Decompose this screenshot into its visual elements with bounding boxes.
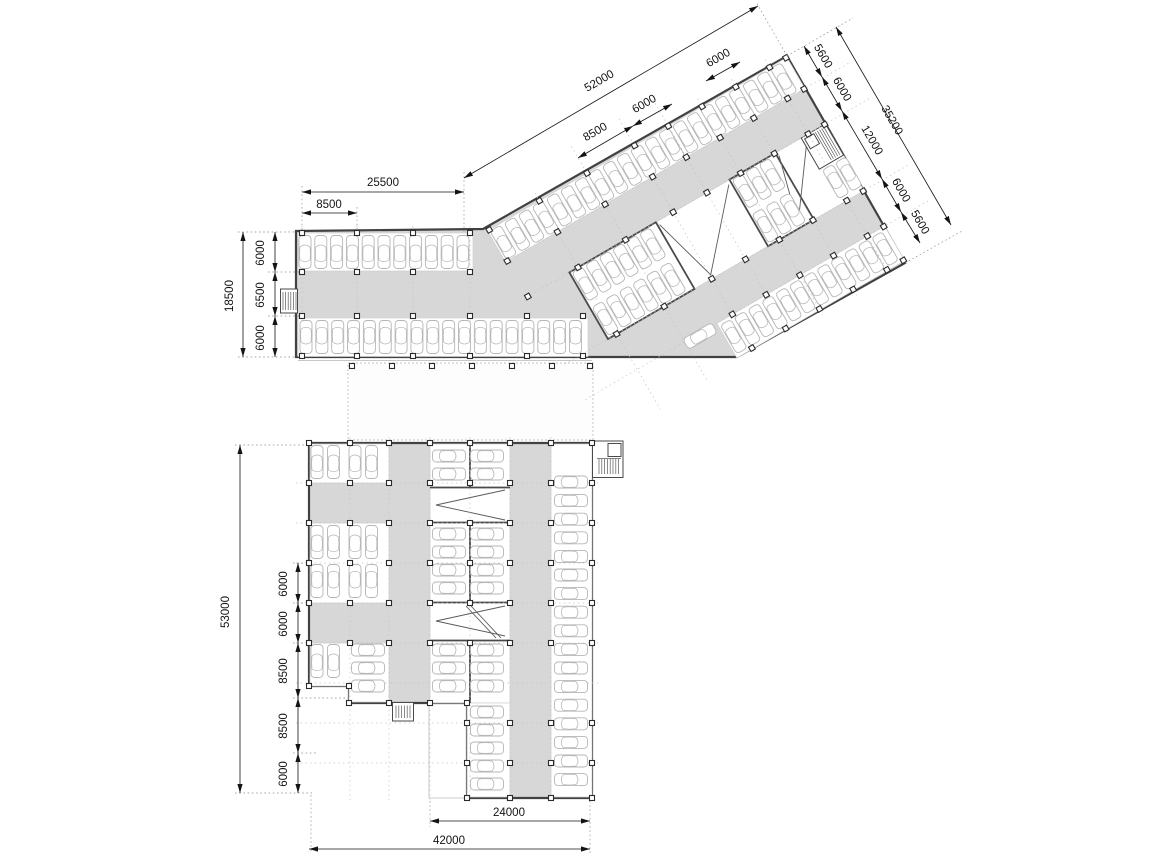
car-icon: [555, 625, 588, 637]
car-icon: [471, 468, 504, 480]
column-marker: [508, 721, 513, 726]
column-marker: [300, 231, 305, 236]
column-marker: [348, 601, 353, 606]
column-marker: [390, 364, 395, 369]
column-marker: [508, 521, 513, 526]
car-icon: [555, 550, 588, 562]
car-icon: [555, 606, 588, 618]
stair-south: [393, 703, 414, 722]
dim-label-bar-chain-2: 6000: [255, 325, 267, 351]
car-icon: [433, 528, 466, 540]
car-icon: [555, 774, 588, 786]
column-marker: [468, 521, 473, 526]
column-marker: [468, 641, 473, 646]
car-icon: [366, 446, 378, 479]
column-marker: [525, 354, 530, 359]
car-icon: [316, 321, 328, 354]
column-marker: [468, 231, 473, 236]
column-marker: [430, 364, 435, 369]
open-yard-outline: [429, 703, 467, 798]
floorplan-sheet: 52000 8500 6000 6000 25500 8500 5600 600…: [0, 0, 1156, 865]
car-icon: [506, 321, 518, 354]
car-icon: [410, 236, 422, 269]
dim-label-bar-chain-1: 6500: [255, 282, 267, 308]
car-icon: [554, 321, 566, 354]
column-marker: [465, 796, 470, 801]
witness-line: [905, 231, 962, 263]
dim-label-bar-chain-0: 6000: [255, 240, 267, 266]
column-marker: [581, 354, 586, 359]
column-marker: [590, 521, 595, 526]
connecting-deck: [298, 361, 593, 441]
car-icon: [441, 236, 453, 269]
column-marker: [465, 701, 470, 706]
column-marker: [590, 561, 595, 566]
car-icon: [555, 513, 588, 525]
column-marker: [300, 354, 305, 359]
column-marker: [581, 314, 586, 319]
car-icon: [471, 644, 504, 656]
car-icon: [349, 526, 361, 559]
column-marker: [355, 314, 360, 319]
dim-label-left-chain-3: 8500: [278, 713, 290, 739]
car-icon: [311, 526, 323, 559]
column-marker: [411, 270, 416, 275]
car-icon: [328, 645, 340, 678]
column-marker: [355, 354, 360, 359]
car-icon: [349, 446, 361, 479]
dim-label-left-chain-2: 8500: [278, 658, 290, 684]
car-icon: [471, 742, 504, 754]
car-icon: [471, 564, 504, 576]
car-icon: [379, 321, 391, 354]
car-icon: [349, 565, 361, 598]
column-marker: [508, 441, 513, 446]
car-icon: [331, 236, 343, 269]
car-icon: [459, 321, 471, 354]
car-icon: [522, 321, 534, 354]
car-icon: [471, 546, 504, 558]
car-icon: [555, 476, 588, 488]
car-icon: [555, 588, 588, 600]
dim-label-right-chain-0: 5600: [811, 42, 834, 70]
column-marker: [387, 701, 392, 706]
column-marker: [470, 364, 475, 369]
car-icon: [328, 446, 340, 479]
column-marker: [348, 561, 353, 566]
car-icon: [362, 236, 374, 269]
column-marker: [508, 601, 513, 606]
car-icon: [471, 450, 504, 462]
car-icon: [433, 468, 466, 480]
column-marker: [590, 761, 595, 766]
car-icon: [311, 565, 323, 598]
column-marker: [468, 561, 473, 566]
dim-label-bar-length: 25500: [367, 177, 399, 189]
column-marker: [590, 796, 595, 801]
dim-label-left-chain-4: 6000: [278, 761, 290, 787]
dim-label-right-chain-2: 12000: [858, 124, 884, 158]
dim-label-right-chain-3: 6000: [889, 176, 912, 204]
column-marker: [468, 354, 473, 359]
column-marker: [348, 521, 353, 526]
column-marker: [347, 684, 352, 689]
column-marker: [549, 481, 554, 486]
car-icon: [471, 680, 504, 692]
column-marker: [549, 721, 554, 726]
car-icon: [433, 450, 466, 462]
column-marker: [387, 521, 392, 526]
column-marker: [428, 701, 433, 706]
column-marker: [387, 481, 392, 486]
column-marker: [549, 641, 554, 646]
car-icon: [555, 495, 588, 507]
column-marker: [307, 441, 312, 446]
column-marker: [428, 441, 433, 446]
car-icon: [433, 680, 466, 692]
car-icon: [555, 718, 588, 730]
car-icon: [433, 564, 466, 576]
column-marker: [549, 521, 554, 526]
column-marker: [428, 561, 433, 566]
column-marker: [468, 270, 473, 275]
car-icon: [433, 582, 466, 594]
car-icon: [363, 321, 375, 354]
column-marker: [508, 641, 513, 646]
car-icon: [427, 321, 439, 354]
car-icon: [315, 236, 327, 269]
dim-label-top-bay: 6000: [704, 47, 732, 70]
dim-label-left-chain-0: 6000: [278, 571, 290, 597]
car-icon: [555, 643, 588, 655]
dim-label-right-chain-1: 6000: [830, 75, 853, 103]
column-marker: [590, 601, 595, 606]
car-icon: [352, 662, 385, 674]
column-marker: [350, 364, 355, 369]
dim-label-inner-width: 24000: [493, 807, 525, 819]
dim-label-wing-width: 35200: [878, 104, 904, 138]
column-marker: [468, 441, 473, 446]
column-marker: [549, 561, 554, 566]
column-marker: [508, 761, 513, 766]
column-marker: [590, 641, 595, 646]
column-marker: [347, 701, 352, 706]
column-marker: [348, 481, 353, 486]
dim-label-wing-bay-b: 6000: [630, 93, 658, 116]
column-marker: [508, 561, 513, 566]
car-icon: [555, 755, 588, 767]
dim-label-right-chain-4: 5600: [908, 208, 931, 236]
column-marker: [387, 561, 392, 566]
column-marker: [411, 354, 416, 359]
car-icon: [328, 565, 340, 598]
column-marker: [387, 641, 392, 646]
car-icon: [474, 321, 486, 354]
dim-label-total-width: 42000: [433, 835, 465, 847]
car-icon: [555, 532, 588, 544]
column-marker: [550, 364, 555, 369]
column-marker: [300, 314, 305, 319]
column-marker: [428, 641, 433, 646]
stair-core-northeast: [593, 441, 624, 478]
column-marker: [348, 641, 353, 646]
car-icon: [471, 582, 504, 594]
dim-label-wing-bay-a: 8500: [581, 121, 609, 144]
car-icon: [328, 526, 340, 559]
column-marker: [590, 721, 595, 726]
car-icon: [555, 569, 588, 581]
car-icon: [471, 778, 504, 790]
column-marker: [465, 761, 470, 766]
car-icon: [352, 644, 385, 656]
car-icon: [395, 321, 407, 354]
column-marker: [355, 270, 360, 275]
column-marker: [300, 270, 305, 275]
column-marker: [549, 441, 554, 446]
car-icon: [425, 236, 437, 269]
floor-plan-canvas: 52000 8500 6000 6000 25500 8500 5600 600…: [0, 0, 1156, 865]
car-icon: [471, 724, 504, 736]
dim-label-wing-length: 52000: [583, 68, 617, 94]
column-marker: [549, 761, 554, 766]
car-icon: [346, 236, 358, 269]
dim-label-bar-bay: 8500: [316, 199, 342, 211]
car-icon: [555, 736, 588, 748]
column-marker: [387, 601, 392, 606]
column-marker: [590, 481, 595, 486]
column-marker: [307, 684, 312, 689]
column-marker: [428, 521, 433, 526]
car-icon: [471, 662, 504, 674]
car-icon: [311, 645, 323, 678]
column-marker: [307, 561, 312, 566]
column-marker: [348, 441, 353, 446]
car-icon: [471, 706, 504, 718]
column-marker: [307, 481, 312, 486]
car-icon: [352, 680, 385, 692]
column-marker: [588, 364, 593, 369]
car-icon: [471, 760, 504, 772]
car-icon: [433, 546, 466, 558]
car-icon: [299, 236, 311, 269]
column-marker: [468, 601, 473, 606]
deck-outline: [348, 363, 593, 440]
dim-label-bar-width: 18500: [224, 280, 236, 312]
column-marker: [355, 231, 360, 236]
column-marker: [307, 601, 312, 606]
car-icon: [378, 236, 390, 269]
car-icon: [348, 321, 360, 354]
car-icon: [569, 321, 581, 354]
column-marker: [468, 314, 473, 319]
car-icon: [471, 528, 504, 540]
car-icon: [433, 644, 466, 656]
car-icon: [555, 699, 588, 711]
car-icon: [332, 321, 344, 354]
column-marker: [508, 796, 513, 801]
column-marker: [411, 231, 416, 236]
car-icon: [538, 321, 550, 354]
dim-label-total-depth: 53000: [220, 596, 232, 628]
column-marker: [387, 441, 392, 446]
column-marker: [549, 601, 554, 606]
column-marker: [411, 314, 416, 319]
column-marker: [307, 641, 312, 646]
column-marker: [510, 364, 515, 369]
car-icon: [443, 321, 455, 354]
column-marker: [549, 796, 554, 801]
stair-west: [281, 289, 298, 313]
column-marker: [525, 314, 530, 319]
car-icon: [300, 321, 312, 354]
witness-line: [756, 2, 787, 56]
car-icon: [366, 565, 378, 598]
car-icon: [394, 236, 406, 269]
column-marker: [428, 481, 433, 486]
car-icon: [457, 236, 469, 269]
car-icon: [555, 662, 588, 674]
column-marker: [508, 481, 513, 486]
column-marker: [428, 601, 433, 606]
car-icon: [366, 526, 378, 559]
column-marker: [590, 441, 595, 446]
car-icon: [555, 681, 588, 693]
column-marker: [307, 521, 312, 526]
dim-label-left-chain-1: 6000: [278, 611, 290, 637]
car-icon: [433, 662, 466, 674]
car-icon: [411, 321, 423, 354]
car-icon: [490, 321, 502, 354]
column-marker: [468, 481, 473, 486]
car-icon: [311, 446, 323, 479]
column-marker: [465, 721, 470, 726]
